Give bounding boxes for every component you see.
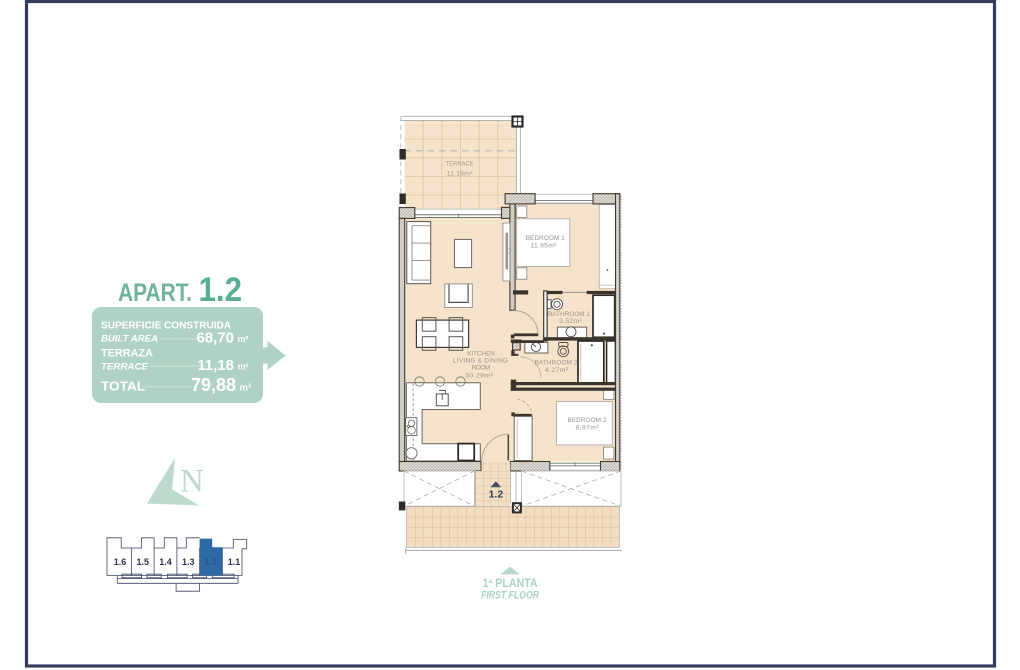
svg-text:BATHROOM 1: BATHROOM 1 [548,311,590,318]
svg-text:11.18m²: 11.18m² [447,171,474,178]
svg-text:TOTAL: TOTAL [101,380,145,394]
svg-text:1.3: 1.3 [182,557,195,567]
svg-text:1.1: 1.1 [228,557,241,567]
svg-text:11.95m²: 11.95m² [530,242,557,249]
svg-text:BUILT AREA: BUILT AREA [101,334,158,345]
svg-text:BEDROOM 2: BEDROOM 2 [568,417,607,424]
svg-text:FIRST FLOOR: FIRST FLOOR [481,590,539,602]
svg-text:m²: m² [238,362,249,372]
svg-text:ROOM: ROOM [472,365,491,372]
svg-text:1.4: 1.4 [159,557,172,567]
svg-text:APART.: APART. [118,279,192,307]
svg-text:68,70: 68,70 [196,330,234,347]
svg-text:1.2: 1.2 [205,557,218,567]
svg-text:1.6: 1.6 [114,557,127,567]
svg-text:LIVING & DINING: LIVING & DINING [453,358,508,365]
svg-text:m²: m² [238,334,249,344]
svg-text:TERRACE: TERRACE [101,361,149,372]
svg-text:1.5: 1.5 [136,557,149,567]
svg-text:1ª PLANTA: 1ª PLANTA [483,578,538,590]
svg-text:11,18: 11,18 [197,357,234,374]
svg-text:KITCHEN: KITCHEN [467,351,495,358]
svg-text:m²: m² [240,382,252,393]
svg-text:79,88: 79,88 [191,375,236,395]
svg-text:N: N [180,464,204,500]
svg-text:BEDROOM 1: BEDROOM 1 [526,235,565,242]
svg-text:4.27m²: 4.27m² [545,367,569,374]
svg-text:3.52m²: 3.52m² [559,318,582,325]
svg-text:30.29m²: 30.29m² [465,372,493,379]
svg-text:1.2: 1.2 [199,271,243,309]
svg-text:1.2: 1.2 [489,489,504,501]
svg-text:8.97m²: 8.97m² [576,424,600,431]
svg-text:BATHROOM 2: BATHROOM 2 [535,360,578,367]
svg-text:TERRACE: TERRACE [446,161,474,168]
svg-text:TERRAZA: TERRAZA [101,348,153,360]
